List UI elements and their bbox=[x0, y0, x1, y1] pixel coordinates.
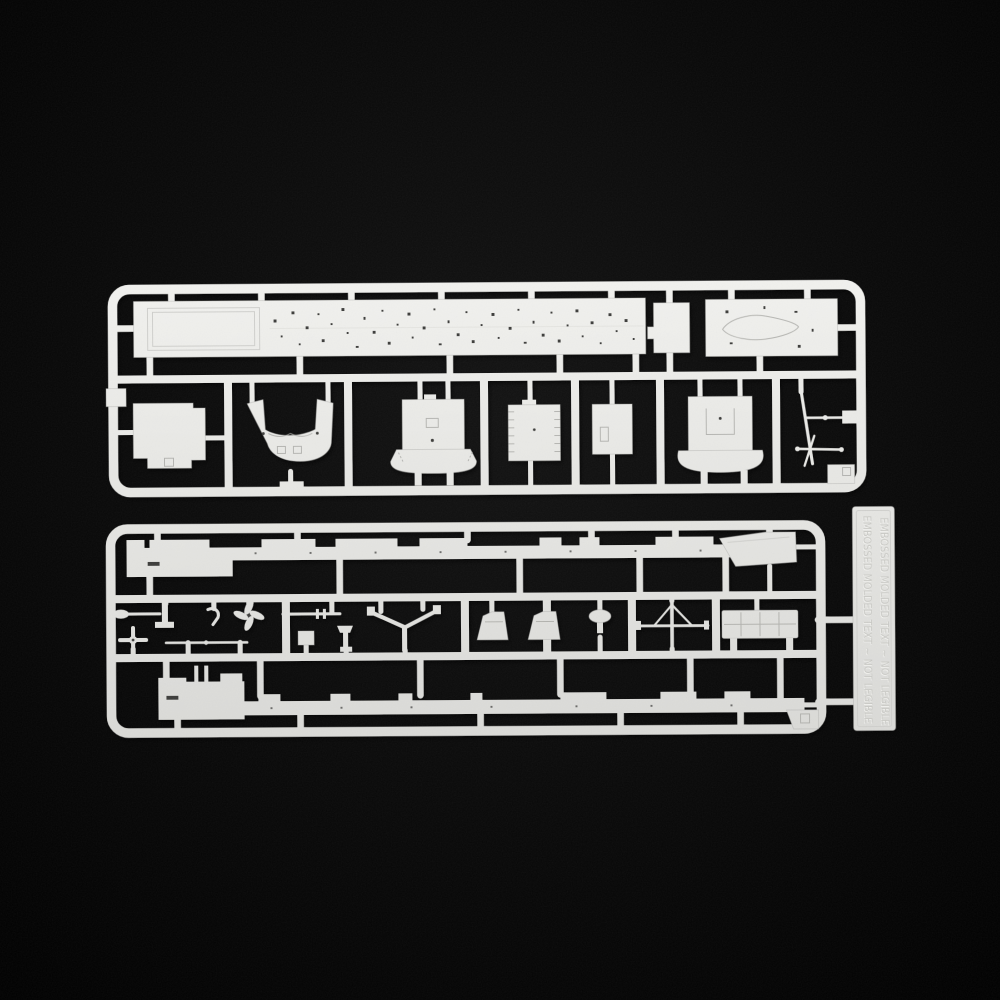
sprue-photo-svg: EMBOSSED MOLDED TEXT ~ NOT LEGIBLE EMBOS… bbox=[0, 0, 1000, 1000]
photo-canvas: EMBOSSED MOLDED TEXT ~ NOT LEGIBLE EMBOS… bbox=[0, 0, 1000, 1000]
film-grain-overlay bbox=[0, 0, 1000, 1000]
